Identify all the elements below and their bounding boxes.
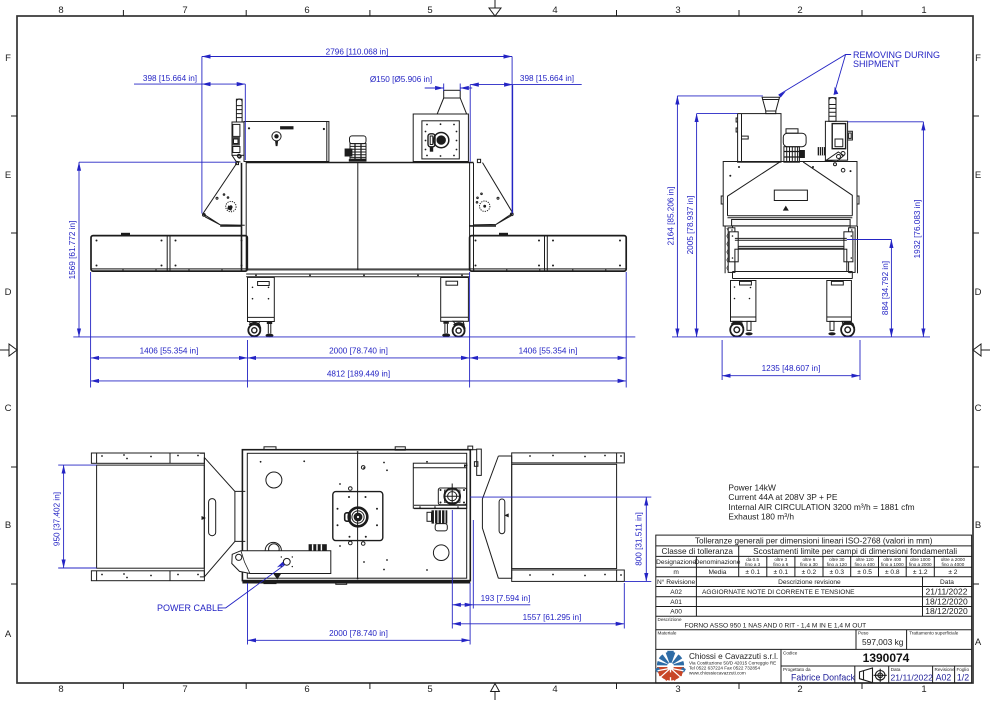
svg-text:2005 [78.937 in]: 2005 [78.937 in] — [686, 196, 695, 255]
svg-text:3: 3 — [675, 5, 680, 16]
svg-text:2000 [78.740 in]: 2000 [78.740 in] — [329, 629, 388, 638]
svg-text:18/12/2020: 18/12/2020 — [925, 596, 968, 606]
svg-text:Peso: Peso — [858, 631, 869, 636]
svg-text:± 0.5: ± 0.5 — [857, 569, 872, 576]
svg-text:5: 5 — [427, 684, 432, 695]
svg-text:398 [15.664 in]: 398 [15.664 in] — [143, 74, 197, 83]
svg-text:Fabrice Donfack: Fabrice Donfack — [791, 673, 856, 683]
svg-text:A: A — [975, 637, 982, 648]
svg-text:597,003 kg: 597,003 kg — [862, 637, 904, 647]
svg-text:AGGIORNATE NOTE DI CORRENTE E: AGGIORNATE NOTE DI CORRENTE E TENSIONE — [702, 589, 855, 596]
svg-text:A01: A01 — [670, 599, 682, 606]
svg-text:4: 4 — [552, 684, 557, 695]
svg-text:A: A — [5, 629, 12, 640]
svg-text:A02: A02 — [936, 673, 952, 683]
svg-text:Current 44A at 208V 3P + PE: Current 44A at 208V 3P + PE — [728, 492, 837, 502]
svg-text:Designazione: Designazione — [656, 559, 696, 566]
svg-text:C: C — [975, 403, 982, 414]
svg-text:www.chiossiecavazzuti.com: www.chiossiecavazzuti.com — [689, 670, 746, 675]
svg-text:Trattamento superficiale: Trattamento superficiale — [909, 631, 959, 636]
svg-text:Data: Data — [891, 667, 901, 672]
svg-text:B: B — [975, 520, 981, 531]
svg-text:7: 7 — [182, 5, 187, 16]
svg-text:F: F — [5, 53, 11, 64]
svg-text:C: C — [5, 403, 12, 414]
svg-text:fino a 1000: fino a 1000 — [881, 562, 904, 567]
svg-text:± 1.2: ± 1.2 — [913, 569, 928, 576]
svg-text:A02: A02 — [670, 589, 682, 596]
svg-text:Data: Data — [940, 579, 954, 586]
svg-text:± 0.1: ± 0.1 — [773, 569, 788, 576]
svg-text:fino a 400: fino a 400 — [855, 562, 876, 567]
svg-text:1235 [48.607 in]: 1235 [48.607 in] — [762, 364, 821, 373]
svg-text:7: 7 — [182, 684, 187, 695]
svg-text:398 [15.664 in]: 398 [15.664 in] — [520, 74, 574, 83]
svg-text:193 [7.594 in]: 193 [7.594 in] — [481, 594, 531, 603]
svg-text:D: D — [5, 287, 12, 298]
svg-text:950 [37.402 in]: 950 [37.402 in] — [53, 492, 62, 546]
svg-text:4: 4 — [552, 5, 557, 16]
svg-text:2164 [85.206 in]: 2164 [85.206 in] — [667, 187, 676, 246]
svg-text:E: E — [975, 170, 981, 181]
svg-text:Exhaust 180 m³/h: Exhaust 180 m³/h — [728, 512, 794, 522]
svg-text:Codice: Codice — [783, 651, 798, 656]
svg-text:1569 [61.772 in]: 1569 [61.772 in] — [68, 221, 77, 280]
svg-text:N° Revisione: N° Revisione — [657, 578, 696, 586]
svg-text:SHIPMENT: SHIPMENT — [853, 59, 900, 69]
svg-text:± 0.3: ± 0.3 — [829, 569, 844, 576]
svg-text:B: B — [5, 520, 11, 531]
svg-text:1: 1 — [921, 5, 926, 16]
svg-text:2796 [110.068 in]: 2796 [110.068 in] — [326, 47, 389, 56]
svg-text:Scostamenti limite per campi d: Scostamenti limite per campi di dimensio… — [753, 547, 957, 556]
svg-text:6: 6 — [304, 684, 309, 695]
svg-text:Ø150 [Ø5.906 in]: Ø150 [Ø5.906 in] — [370, 75, 432, 84]
svg-text:POWER CABLE: POWER CABLE — [157, 603, 223, 613]
svg-text:± 0.2: ± 0.2 — [802, 569, 817, 576]
svg-text:5: 5 — [427, 5, 432, 16]
svg-text:Foglio: Foglio — [957, 667, 970, 672]
svg-text:8: 8 — [58, 684, 63, 695]
svg-text:fino a 30: fino a 30 — [800, 562, 818, 567]
svg-text:fino a 3: fino a 3 — [745, 562, 761, 567]
svg-text:4812 [189.449 in]: 4812 [189.449 in] — [327, 370, 390, 379]
svg-text:m: m — [673, 569, 679, 576]
svg-text:F: F — [975, 53, 981, 64]
svg-text:Descrizione: Descrizione — [658, 617, 682, 622]
svg-text:Tolleranze generali per dimens: Tolleranze generali per dimensioni linea… — [695, 537, 933, 546]
svg-text:1406 [55.354 in]: 1406 [55.354 in] — [519, 347, 578, 356]
svg-text:Materiale: Materiale — [658, 631, 677, 636]
svg-text:2: 2 — [797, 5, 802, 16]
svg-text:1390074: 1390074 — [863, 651, 910, 665]
svg-text:21/11/2022: 21/11/2022 — [891, 673, 934, 683]
svg-text:1/2: 1/2 — [957, 673, 969, 683]
svg-text:Internal AIR CIRCULATION 3200: Internal AIR CIRCULATION 3200 m³/h = 188… — [728, 502, 914, 512]
svg-text:Denominazione: Denominazione — [695, 559, 741, 566]
svg-text:1: 1 — [921, 684, 926, 695]
svg-text:Media: Media — [709, 569, 727, 576]
svg-text:6: 6 — [304, 5, 309, 16]
svg-text:884 [34.792 in]: 884 [34.792 in] — [881, 261, 890, 315]
svg-text:Revisione: Revisione — [935, 667, 956, 672]
svg-text:FORNO ASSO 950 1 NAS AND 0 RIT: FORNO ASSO 950 1 NAS AND 0 RIT - 1,4 M I… — [685, 623, 867, 630]
svg-text:fino a 120: fino a 120 — [827, 562, 848, 567]
svg-text:Power 14kW: Power 14kW — [728, 482, 776, 492]
svg-text:2: 2 — [797, 684, 802, 695]
svg-text:D: D — [975, 287, 982, 298]
svg-text:fino a 4000: fino a 4000 — [942, 562, 965, 567]
svg-text:3: 3 — [675, 684, 680, 695]
svg-text:Descrizione revisione: Descrizione revisione — [778, 579, 841, 586]
svg-text:18/12/2020: 18/12/2020 — [925, 606, 968, 616]
svg-text:8: 8 — [58, 5, 63, 16]
svg-text:1557 [61.295 in]: 1557 [61.295 in] — [523, 613, 582, 622]
svg-text:± 0.1: ± 0.1 — [745, 569, 760, 576]
svg-text:E: E — [5, 170, 11, 181]
svg-text:± 0.8: ± 0.8 — [885, 569, 900, 576]
svg-text:fino a 6: fino a 6 — [773, 562, 789, 567]
svg-text:fino a 2000: fino a 2000 — [909, 562, 932, 567]
svg-text:A00: A00 — [670, 609, 682, 616]
svg-text:1932 [76.083 in]: 1932 [76.083 in] — [913, 200, 922, 259]
svg-text:Classe di tolleranza: Classe di tolleranza — [661, 547, 733, 556]
svg-text:Progettato da: Progettato da — [783, 667, 811, 672]
svg-text:± 2: ± 2 — [948, 569, 957, 576]
svg-text:800 [31.511 in]: 800 [31.511 in] — [635, 512, 644, 566]
svg-text:2000 [78.740 in]: 2000 [78.740 in] — [329, 347, 388, 356]
svg-text:21/11/2022: 21/11/2022 — [926, 587, 968, 597]
svg-text:1406 [55.354 in]: 1406 [55.354 in] — [140, 347, 199, 356]
